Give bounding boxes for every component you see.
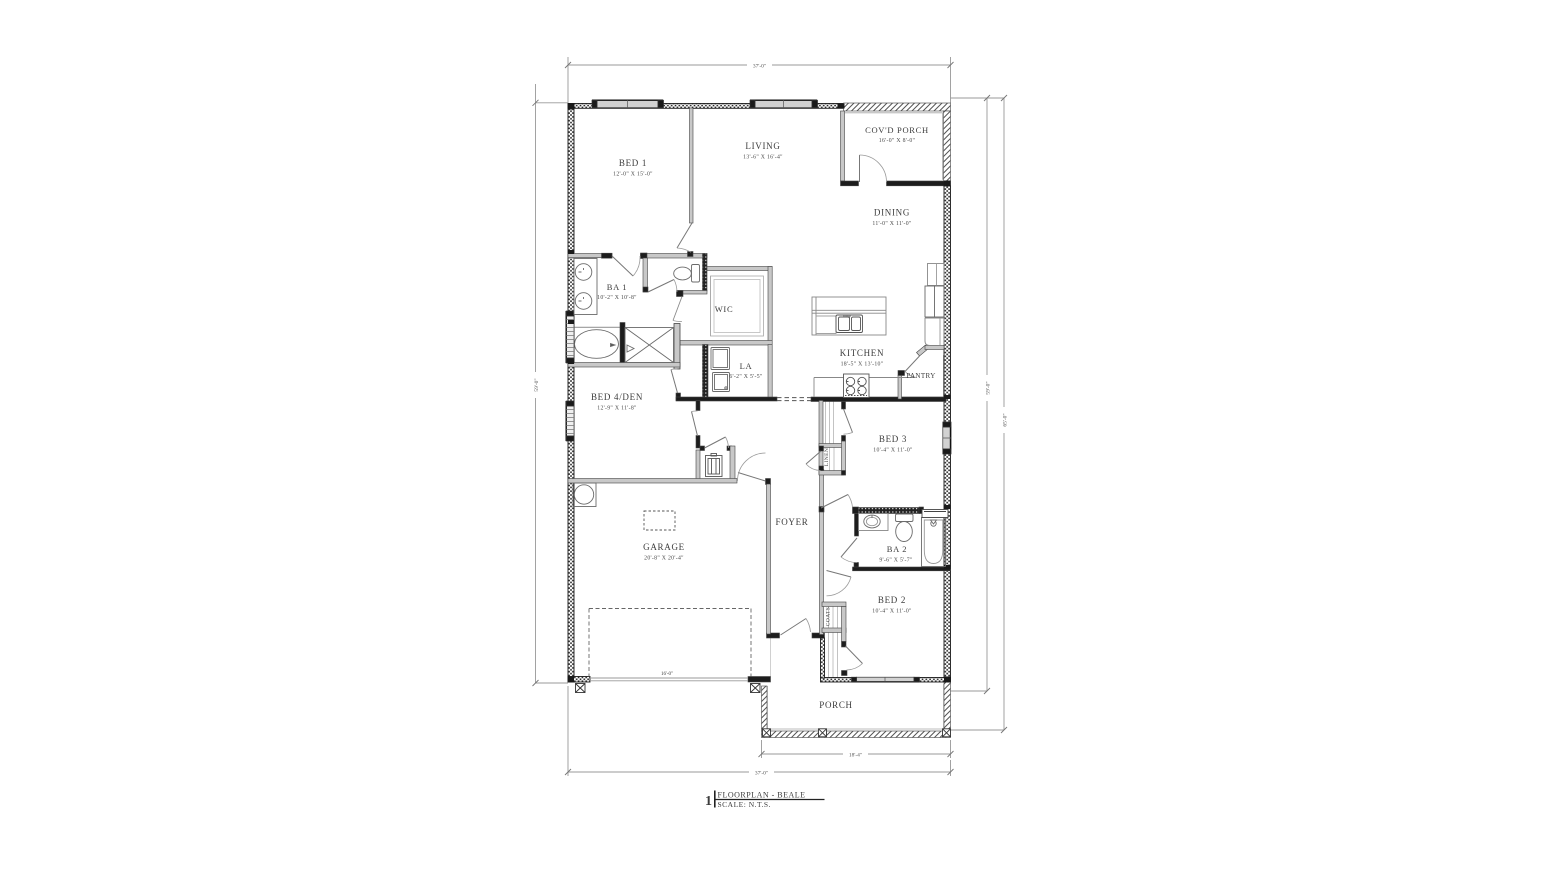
svg-text:LA: LA — [740, 361, 753, 371]
svg-text:BA 1: BA 1 — [607, 282, 628, 292]
svg-text:LIVING: LIVING — [745, 141, 780, 151]
svg-text:18'-5" X 13'-10": 18'-5" X 13'-10" — [841, 362, 884, 368]
svg-text:10'-4" X 11'-0": 10'-4" X 11'-0" — [872, 609, 911, 615]
svg-text:59'-0": 59'-0" — [534, 378, 540, 391]
svg-text:BED 1: BED 1 — [619, 158, 647, 168]
svg-text:12'-9" X 11'-8": 12'-9" X 11'-8" — [597, 406, 636, 412]
svg-text:59'-0": 59'-0" — [986, 381, 992, 394]
svg-text:FOYER: FOYER — [775, 517, 808, 527]
svg-text:BED 4/DEN: BED 4/DEN — [591, 392, 643, 402]
svg-text:BED 2: BED 2 — [878, 595, 906, 605]
svg-text:65'-0": 65'-0" — [1003, 413, 1009, 426]
svg-text:PANTRY: PANTRY — [906, 372, 935, 380]
svg-text:DINING: DINING — [874, 208, 910, 218]
svg-text:BA 2: BA 2 — [887, 544, 908, 554]
svg-text:37'-0": 37'-0" — [755, 771, 768, 777]
svg-text:FLOORPLAN - BEALE: FLOORPLAN - BEALE — [718, 791, 806, 800]
svg-text:WIC: WIC — [715, 304, 734, 314]
svg-text:KITCHEN: KITCHEN — [840, 348, 884, 358]
svg-text:37'-0": 37'-0" — [753, 64, 766, 70]
svg-text:6'-2" X 5'-5": 6'-2" X 5'-5" — [729, 374, 762, 380]
svg-text:BED 3: BED 3 — [879, 434, 907, 444]
svg-text:1: 1 — [705, 794, 712, 809]
svg-text:20'-8" X 20'-4": 20'-8" X 20'-4" — [644, 556, 684, 562]
svg-text:10'-4" X 11'-0": 10'-4" X 11'-0" — [873, 448, 912, 454]
svg-text:GARAGE: GARAGE — [643, 542, 685, 552]
svg-text:13'-6" X 16'-4": 13'-6" X 16'-4" — [743, 155, 783, 161]
svg-text:16'-0" X 8'-0": 16'-0" X 8'-0" — [879, 138, 915, 144]
svg-text:18'-4": 18'-4" — [849, 753, 862, 759]
svg-text:COV'D PORCH: COV'D PORCH — [865, 125, 929, 135]
svg-text:SCALE: N.T.S.: SCALE: N.T.S. — [718, 800, 771, 809]
svg-text:10'-2" X 10'-8": 10'-2" X 10'-8" — [597, 295, 637, 301]
svg-text:LINEN: LINEN — [824, 448, 830, 467]
svg-text:11'-0" X 11'-0": 11'-0" X 11'-0" — [872, 221, 911, 227]
svg-text:12'-0" X 15'-0": 12'-0" X 15'-0" — [613, 172, 653, 178]
svg-text:16'-0": 16'-0" — [661, 672, 673, 677]
svg-text:COATS: COATS — [826, 607, 832, 626]
svg-text:PORCH: PORCH — [819, 700, 853, 710]
svg-text:9'-6" X 5'-7": 9'-6" X 5'-7" — [879, 558, 912, 564]
